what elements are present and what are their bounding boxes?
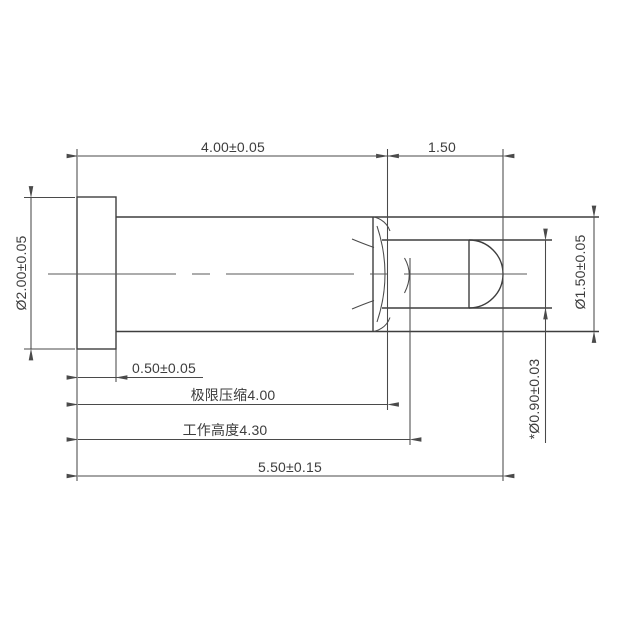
dim-label-plunger-diameter: *Ø0.90±0.03	[526, 359, 542, 440]
plunger-groove-arc	[405, 258, 410, 293]
part-outline	[48, 197, 599, 349]
pogo-pin-dimension-drawing: 4.00±0.05 1.50 Ø2.00±0.05 0.50±0.05 极限压缩…	[0, 0, 620, 620]
dim-label-working-height: 工作高度4.30	[183, 422, 268, 438]
dim-label-flange-diameter: Ø2.00±0.05	[13, 235, 29, 310]
crimp-arc-inner-top	[352, 239, 374, 248]
dim-label-limit-compression: 极限压缩4.00	[191, 387, 276, 403]
dim-label-flange-thickness: 0.50±0.05	[132, 360, 196, 376]
dim-label-barrel-diameter: Ø1.50±0.05	[572, 234, 588, 309]
dim-label-body-length: 4.00±0.05	[201, 139, 265, 155]
flange-outline	[77, 197, 116, 349]
engineering-drawing-canvas: 4.00±0.05 1.50 Ø2.00±0.05 0.50±0.05 极限压缩…	[0, 0, 620, 620]
dim-label-plunger-length: 1.50	[428, 139, 456, 155]
crimp-arc-inner-bottom	[352, 301, 374, 310]
dim-label-overall-length: 5.50±0.15	[258, 459, 322, 475]
